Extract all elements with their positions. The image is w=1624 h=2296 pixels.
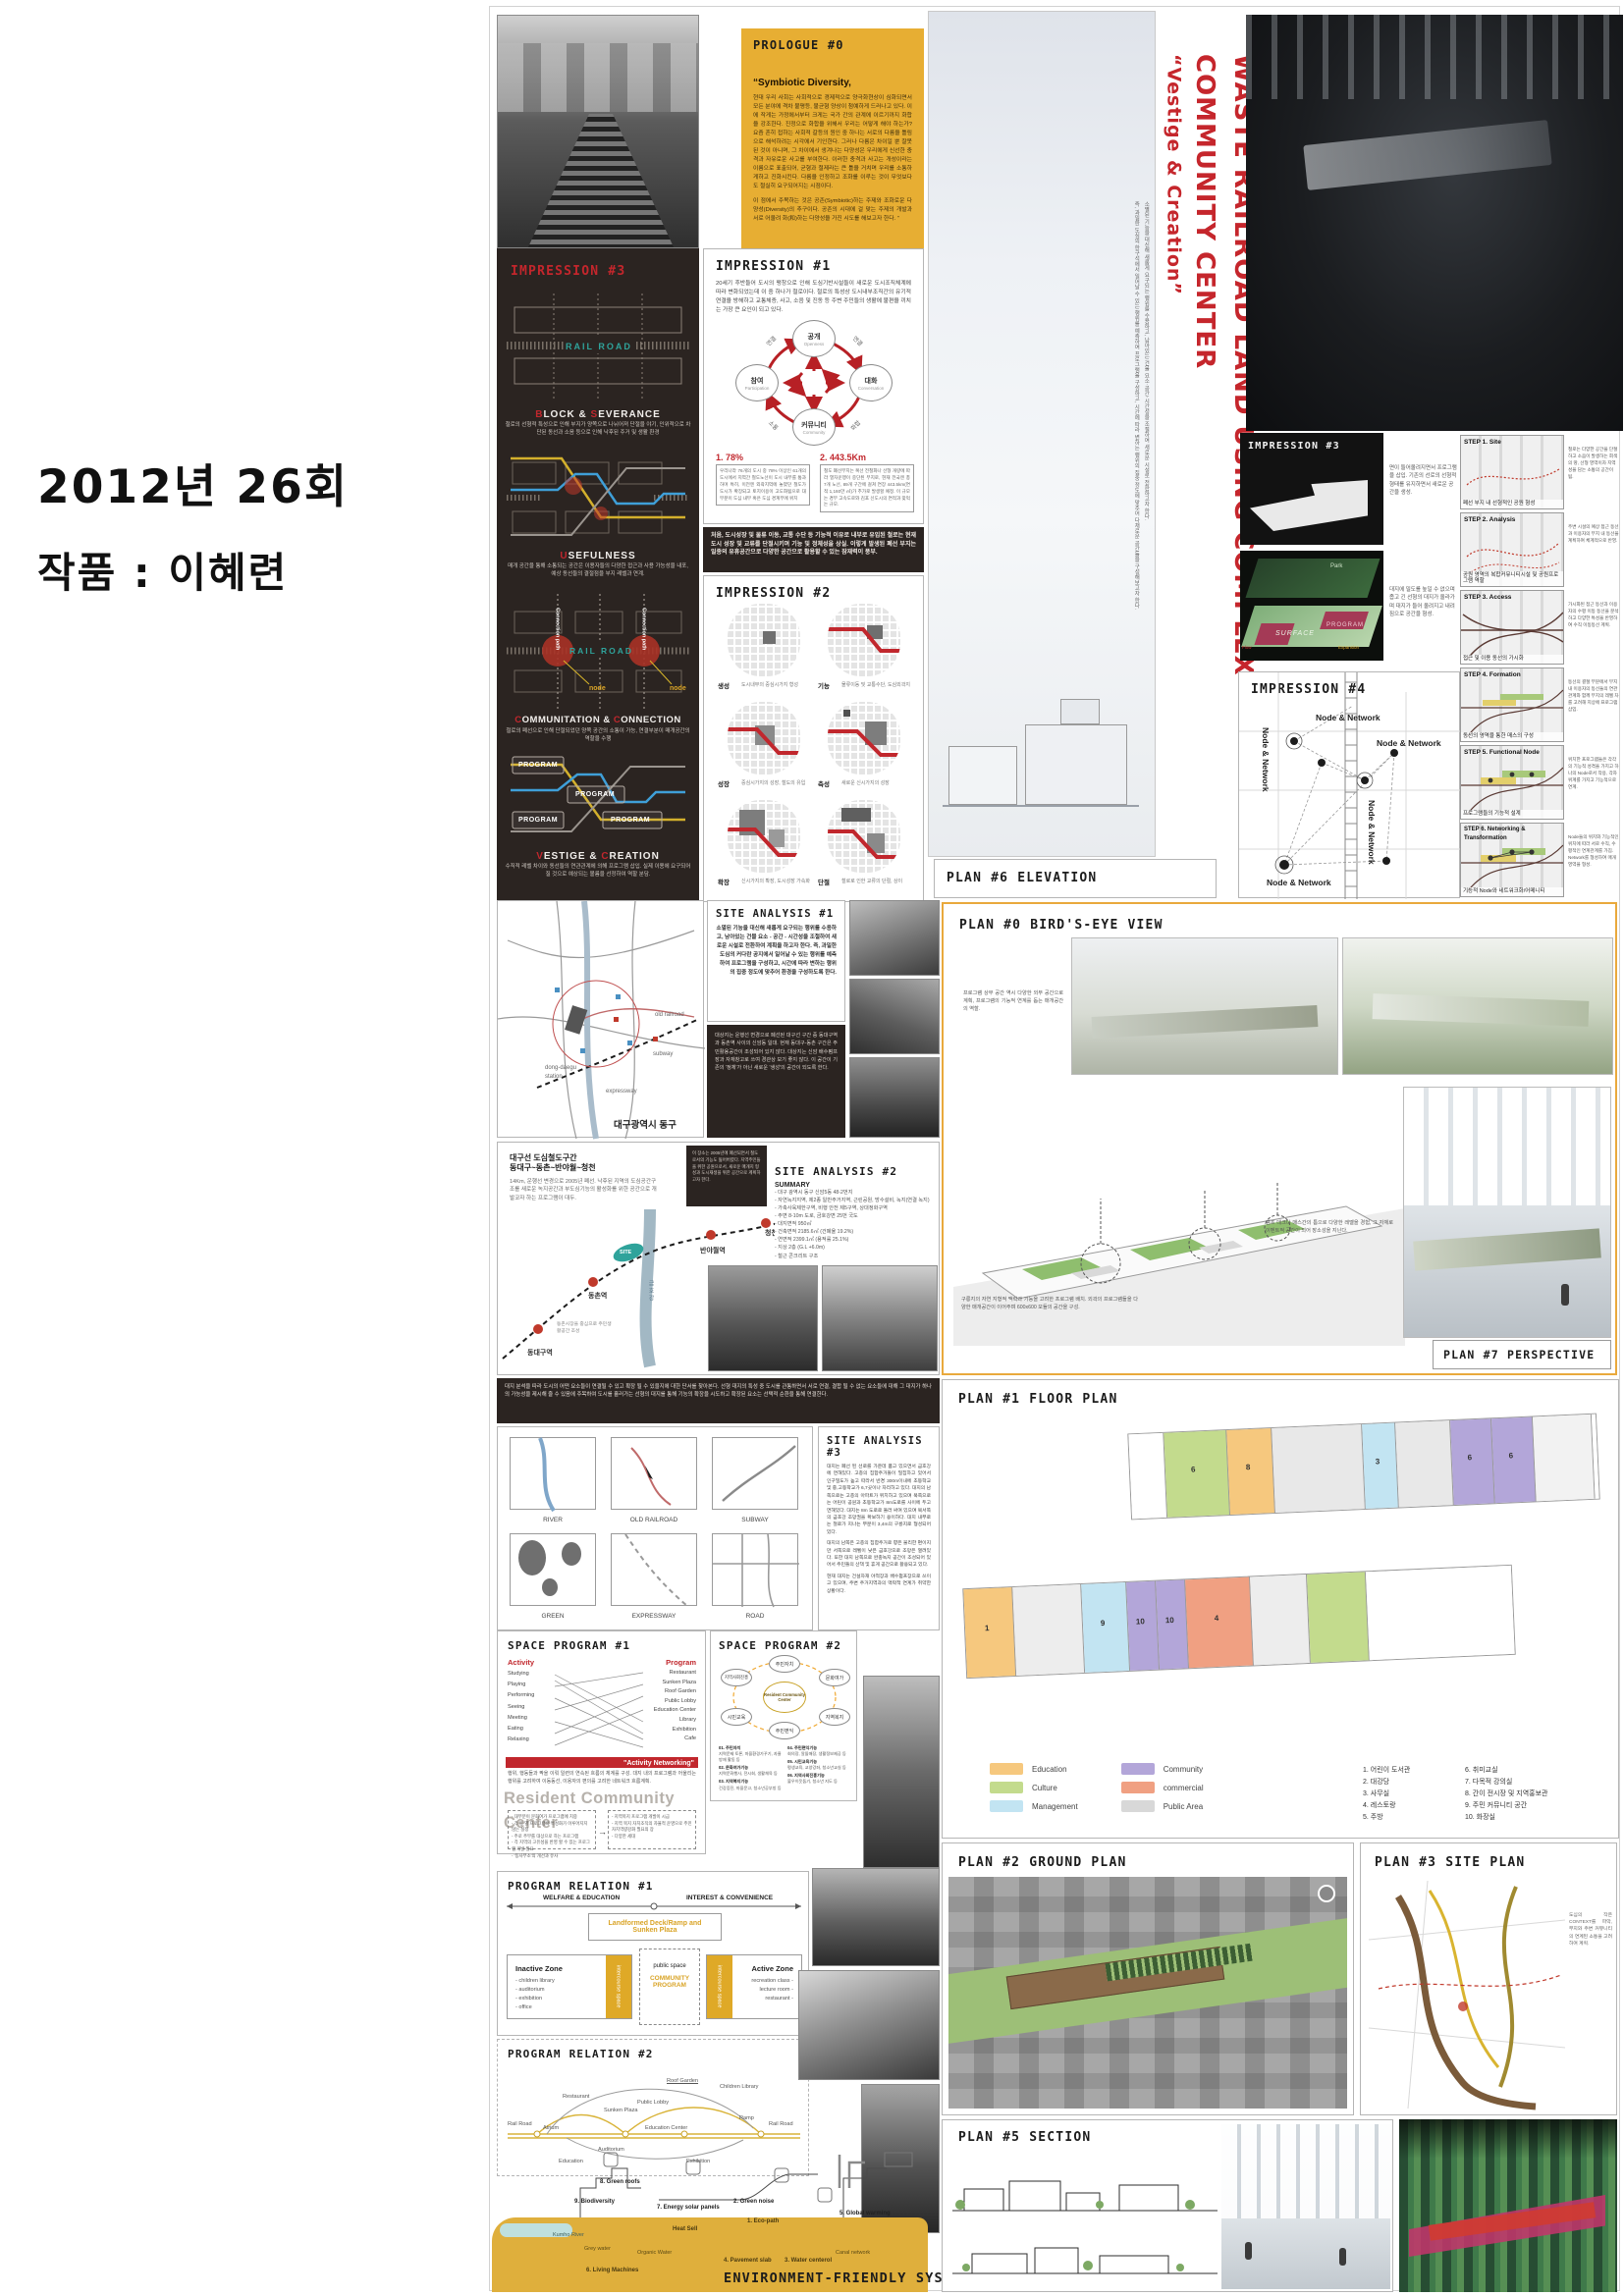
plan0-caption-2: 램프 데크나 매스간의 틈으로 다양한 레벨을 경험, 그 자체로 이벤트적 공… — [1266, 1220, 1393, 1236]
impression-note-bar: 처음, 도시성장 및 물류 이동, 교통 수단 등 기능적 이유로 내부로 유입… — [703, 527, 924, 572]
sp1-network-lines — [555, 1671, 643, 1749]
pr-photo-1 — [812, 1868, 940, 1966]
legend-label-community: Community — [1164, 1765, 1203, 1774]
sp1-panel: SPACE PROGRAM #1 Activity Program Studyi… — [497, 1630, 706, 1854]
paper-model-photo: IMPRESSION #3 — [1240, 433, 1383, 545]
render-deck-shape — [1303, 120, 1551, 190]
node-network-label-5: Node & Network — [1267, 877, 1331, 889]
plan0-caption-1: 프로그램 상부 공간 역시 다양한 외부 공간으로 계획, 프로그램의 기능적 … — [963, 990, 1063, 1013]
growth-cell-1: 생성 도시내부의 중심시가지 형성 — [718, 604, 812, 698]
pr1-middle-box: public space COMMUNITY PROGRAM — [639, 1949, 700, 2025]
station-3: 반야월역 — [700, 1247, 726, 1257]
sa2-summary-list: - 대구 광역시 동구 신암5동 48-2번지- 자연녹지지역, 제2종 일반주… — [775, 1189, 937, 1260]
legend-label-culture: Culture — [1032, 1784, 1057, 1792]
plan0-caption-3: 구릉지의 자연 지형적 맥락과 기능을 고려한 프로그램 배치. 외곽의 프로그… — [961, 1297, 1138, 1312]
impression4-panel: IMPRESSION #4 — [1238, 671, 1460, 898]
plan0-render-2 — [1342, 937, 1613, 1075]
pr1-inactive-box: Inactive Zone - children library- audito… — [507, 1954, 632, 2019]
elevation-strip — [928, 11, 1156, 857]
photo-green-interior-render — [1399, 2119, 1617, 2292]
sa3-p1: 대지는 폐선 된 선로를 가운데 품고 있으면서 금호강에 면해있다. 고층의 … — [827, 1464, 931, 1536]
node-network-diagram — [1239, 672, 1461, 899]
sp1-program-header: Program — [645, 1657, 696, 1668]
sp1-arrow: → — [598, 1826, 607, 1840]
step-row-4: STEP 4. Formation 동선의 영역을 통한 매스의 구성 동선의 … — [1460, 667, 1621, 744]
competition-poster-page: { "meta":{"year":"2012년 26회","work":"작품 … — [0, 0, 1624, 2296]
program-label-4: PROGRAM — [518, 816, 558, 827]
impression3-left-panel: IMPRESSION #3 RAIL ROAD BLOCK & SEVERANC… — [497, 248, 699, 902]
sp1-activity-header: Activity — [508, 1657, 534, 1668]
legend-label-management: Management — [1032, 1802, 1078, 1811]
env-canal: Canal network — [836, 2249, 870, 2257]
legend-swatch-management — [990, 1800, 1023, 1812]
prologue-paragraph-1: 현대 우리 사회는 사회적으로 경제적으로 양극화현상이 심화되면서 모든 분야… — [753, 94, 912, 191]
plan5-render — [1221, 2124, 1390, 2289]
env-l9: 9. Biodiversity — [574, 2198, 615, 2207]
prologue-title: PROLOGUE #0 — [753, 38, 912, 52]
severance-diagram: RAIL ROAD — [507, 294, 689, 400]
stat1-label: 1. 78% — [716, 452, 743, 465]
floorplan-legend: Education Culture Management Community c… — [990, 1763, 1204, 1819]
sa1-text: 소멸된 기능을 대신해 새롭게 요구되는 행위를 수용하고, 남아있는 건물 요… — [716, 925, 837, 978]
plan0-render-1 — [1071, 937, 1338, 1075]
station-2: 동촌역 — [588, 1292, 607, 1303]
plan3-caption: 도심의 작은 CONTEXT를 파악, 부지와 주변 커뮤니티의 연계된 소통을… — [1569, 1912, 1612, 1948]
pr1-panel: PROGRAM RELATION #1 WELFARE & EDUCATION … — [497, 1871, 809, 2036]
impression3-right-title: IMPRESSION #3 — [1248, 441, 1340, 452]
sa3-title: SITE ANALYSIS #3 — [827, 1435, 931, 1459]
render-towers-shape — [1246, 15, 1623, 99]
sa3-p3: 현재 대지는 건설자재 야적장과 배수펌프장으로 쓰이고 있으며, 주변 주거지… — [827, 1574, 931, 1595]
node-label-1: node — [589, 684, 606, 695]
impression1-intro: 20세기 후반들어 도시의 팽창으로 인해 도심기반시설들이 새로운 도시조직체… — [716, 280, 911, 315]
impression2-title: IMPRESSION #2 — [716, 586, 911, 601]
plan3-curves — [1369, 1881, 1565, 2109]
legend-swatch-education — [990, 1763, 1023, 1775]
pr1-inactive-list: - children library- auditorium - exhibit… — [515, 1977, 555, 2012]
plan2-panel: PLAN #2 GROUND PLAN — [942, 1842, 1354, 2115]
env-l1: 1. Eco-path — [747, 2217, 779, 2226]
sa1-station-label: dong-daegu station — [545, 1064, 594, 1082]
sa2-photo-1 — [708, 1265, 818, 1371]
usefulness-heading: USEFULNESS — [497, 549, 699, 563]
sa2-photo-2 — [822, 1265, 938, 1371]
plan5-title: PLAN #5 SECTION — [958, 2130, 1091, 2145]
node-network-label-1: Node & Network — [1316, 712, 1380, 724]
sp2-diagram: Resident Community Center 주민자치 문화여가 지역복지… — [721, 1655, 848, 1739]
sa2-dark-box: 이 장소는 2005년에 폐선되면서 철도로서의 기능도 잃어버렸다. 지역주민… — [686, 1146, 767, 1206]
paper-model-caption: 면이 들어올려지면서 프로그램을 삽입. 기존의 선로의 선형적 형태를 유지하… — [1389, 464, 1458, 497]
sa1-title: SITE ANALYSIS #1 — [716, 908, 837, 920]
sa3-p2: 대지의 남쪽은 고층의 집합주거로 향은 불리한 편이지만 서쪽으로 레벨이 낮… — [827, 1540, 931, 1570]
legend-swatch-culture — [990, 1782, 1023, 1793]
sa1-expressway-label: expressway — [606, 1088, 637, 1096]
node-network-label-3: Node & Network — [1259, 727, 1272, 792]
usefulness-diagram — [507, 453, 689, 543]
photo-old-tracks — [497, 15, 699, 248]
sa1-old-railroad-label: old railroad — [655, 1011, 684, 1020]
env-river-label: Kumho River — [553, 2231, 584, 2239]
expansion-label: Expansion — [1338, 645, 1359, 652]
legend-swatch-commercial — [1121, 1782, 1155, 1793]
impression3-left-title: IMPRESSION #3 — [511, 264, 625, 279]
sa2-title: SITE ANALYSIS #2 — [775, 1165, 937, 1178]
site-marker-label: SITE — [620, 1249, 631, 1256]
sp1-banner: "Activity Networking" — [506, 1757, 698, 1768]
thumb-river-label: RIVER — [510, 1516, 596, 1525]
severance-heading: BLOCK & SEVERANCE — [497, 407, 699, 422]
env-grey: Grey water — [584, 2245, 611, 2253]
pr-photo-2 — [798, 1970, 940, 2080]
photo-night-aerial-render — [1246, 15, 1623, 431]
title-side-note-2: 즉, 과밀한 도심의 한구석에서 일어날 수 있는 행위를 예측하여 프로그램을… — [1132, 201, 1140, 614]
program-label: PROGRAM — [1326, 621, 1364, 630]
plan3-panel: PLAN #3 SITE PLAN 도심의 작은 CONTEXT를 파악, 부지… — [1360, 1842, 1617, 2115]
prologue-panel: PROLOGUE #0 “Symbiotic Diversity, 현대 우리 … — [741, 28, 924, 250]
sa2-dark-text: 이 장소는 2005년에 폐선되면서 철도로서의 기능도 잃어버렸다. 지역주민… — [692, 1150, 761, 1184]
surface-diagram-caption: 대지에 밀도를 높일 수 없으며 좁고 긴 선형의 대지가 올라가며 대지가 들… — [1389, 586, 1458, 618]
node-participation: 참여 Participation — [735, 364, 779, 401]
thumb-oldrail-label: OLD RAILROAD — [611, 1516, 697, 1525]
park-plane-shape — [1246, 559, 1380, 598]
poster-board: PROLOGUE #0 “Symbiotic Diversity, 현대 우리 … — [489, 6, 1620, 2291]
node-conversation: 대화 Conversation — [849, 364, 893, 401]
flow-label: Flow — [1242, 645, 1252, 652]
sp2-list-col1: 01. 주민자치지역문제 토론, 마을환경가꾸기, 자율방재 활동 등 02. … — [719, 1745, 784, 1791]
prologue-paragraph-2: 이 점에서 주목하는 것은 공존(Symbiotic)하는 주제와 조화로운 다… — [753, 197, 912, 224]
sp2-panel: SPACE PROGRAM #2 Resident Community Cent… — [710, 1630, 857, 1801]
usefulness-caption: 매개 공간을 통해 소통되는 공간은 이용자들의 다양한 접근과 사용 가능성을… — [505, 562, 691, 579]
pr1-axis-right: INTEREST & CONVENIENCE — [686, 1894, 773, 1903]
node-community: 커뮤니티 Community — [792, 408, 836, 446]
legend-label-education: Education — [1032, 1765, 1067, 1774]
impression2-panel: IMPRESSION #2 생성 도시내부의 중심시가지 형성 기능 물류이동 … — [703, 575, 924, 902]
connection-diagram: RAIL ROAD Connection path Connection pat… — [507, 594, 689, 710]
sa1-photo-2 — [849, 979, 940, 1054]
sa1-map-caption: 대구광역시 동구 — [614, 1119, 677, 1133]
severance-caption: 철로의 선형적 특성으로 인해 부지가 양쪽으로 나뉘어져 단절을 야기, 인위… — [505, 421, 691, 438]
room-list-col2: 6. 취미교실7. 다목적 강의실 8. 간이 전시장 및 지역홍보관9. 주민… — [1465, 1765, 1547, 1823]
plan0-panel: PLAN #0 BIRD'S-EYE VIEW 프로그램 상부 공간 역시 다양… — [942, 902, 1617, 1375]
sp1-activities: StudyingPlaying PerformingSeeing Meeting… — [508, 1669, 534, 1745]
env-l8: 8. Green roofs — [600, 2178, 640, 2187]
sa1-subway-label: subway — [653, 1050, 673, 1059]
node-label-2: node — [670, 684, 686, 695]
thumb-subway-label: SUBWAY — [712, 1516, 798, 1525]
sp1-box1: - 대부분이 문화여가 프로그램에 치중- 각 동 별 프로그램의 특성화가 이… — [508, 1810, 596, 1849]
pr1-intercourse-left: intercourse space — [606, 1955, 631, 2018]
left-title-work: 작품 : 이혜련 — [37, 542, 288, 604]
photo-trackbed-shape — [527, 114, 675, 248]
env-heat: Heat Sell — [673, 2225, 697, 2234]
pr2-title: PROGRAM RELATION #2 — [508, 2048, 798, 2060]
sa1-map-panel: old railroad dong-daegu station subway e… — [497, 900, 704, 1138]
plan2-render — [948, 1877, 1347, 2109]
sa2-heading2: 동대구~동촌~반야월~청천 — [510, 1162, 596, 1174]
room-list-col1: 1. 어린이 도서관2. 대강당 3. 사무실4. 레스토랑 5. 주방 — [1363, 1765, 1410, 1823]
sa3-bar: 대지 분석을 따라 도시의 어떤 요소들이 연결될 수 있고 확장 될 수 있을… — [497, 1378, 940, 1423]
sa1-photo-1 — [849, 900, 940, 976]
sp1-caption: 행위, 행동들과 짝을 이뤄 일련의 연속된 흐름의 체계를 구성. 대지 내의… — [508, 1771, 696, 1786]
program-label-1: PROGRAM — [518, 761, 558, 772]
env-l5: 5. Global warming — [839, 2210, 891, 2218]
connection-caption: 철로의 폐선으로 인해 단절되었던 양쪽 공간의 소통이 가능, 연결부분이 매… — [505, 727, 691, 744]
node-network-label-2: Node & Network — [1377, 737, 1441, 750]
step-row-2: STEP 2. Analysis 공원 영역의 복합커뮤니티시설 및 공원프로그… — [1460, 512, 1621, 589]
sp2-center: Resident Community Center — [763, 1682, 806, 1713]
node-openness: 공개 Openness — [792, 320, 836, 357]
photo-houses-shape — [498, 43, 698, 112]
env-l2: 2. Green noise — [733, 2198, 774, 2207]
plan7-label-box: PLAN #7 PERSPECTIVE — [1433, 1340, 1611, 1369]
floorplan-upper: 6 8 3 6 6 — [1127, 1414, 1599, 1521]
program-diagram: PROGRAM PROGRAM PROGRAM PROGRAM — [507, 755, 689, 839]
step-row-5: STEP 5. Functional Node 프로그램들의 기능적 설계 위치… — [1460, 745, 1621, 822]
connection-path-label-2: Connection path — [639, 608, 647, 650]
env-organic: Organic Water — [637, 2249, 672, 2257]
env-l3: 3. Water centerol — [785, 2257, 832, 2266]
plan0-title: PLAN #0 BIRD'S-EYE VIEW — [959, 918, 1164, 933]
thumb-expressway-label: EXPRESSWAY — [611, 1612, 697, 1622]
sa3-thumbs-panel: RIVER OLD RAILROAD SUBWAY GREEN EXPRESSW… — [497, 1426, 813, 1630]
plan7-label: PLAN #7 PERSPECTIVE — [1443, 1348, 1595, 1362]
growth-cell-2: 기능 물류이동 및 교통수단, 도심외곽지 — [818, 604, 912, 698]
plan5-panel: PLAN #5 SECTION — [942, 2119, 1393, 2292]
thumb-green-label: GREEN — [510, 1612, 596, 1622]
sa1-text-box: SITE ANALYSIS #1 소멸된 기능을 대신해 새롭게 요구되는 행위… — [707, 900, 845, 1022]
sp-photo-rails — [863, 1676, 940, 1868]
openness-diagram: 공개 Openness 대화 Conversation 커뮤니티 Communi… — [735, 320, 893, 446]
plan1-panel: PLAN #1 FLOOR PLAN 6 8 3 6 6 1 9 10 10 4 — [942, 1379, 1619, 1839]
plan3-title: PLAN #3 SITE PLAN — [1375, 1855, 1525, 1870]
connection-heading: COMMUNITATION & CONNECTION — [497, 714, 699, 727]
rail-road-label: RAIL ROAD — [566, 341, 632, 354]
growth-cell-6: 단절 철로로 인한 교류의 단절, 상이 — [818, 800, 912, 894]
stat1-text: 우리나라 76개의 도시 중 78% 이상인 61개의 도시에서 지역간 철도노… — [716, 464, 810, 506]
sa3-text-box: SITE ANALYSIS #3 대지는 폐선 된 선로를 가운데 품고 있으면… — [818, 1426, 940, 1630]
plan7-perspective-render — [1403, 1087, 1611, 1338]
legend-swatch-public — [1121, 1800, 1155, 1812]
elevation-building-lines — [943, 689, 1139, 807]
sa2-summary-title: SUMMARY — [775, 1182, 937, 1189]
sp1-box2: - 지역복지 프로그램 개발이 시급- 지역 복지 자치조직의 자율적 운영으로… — [608, 1810, 696, 1849]
station-1: 동대구역 — [527, 1349, 553, 1360]
impression1-panel: IMPRESSION #1 20세기 후반들어 도시의 팽창으로 인해 도심기반… — [703, 248, 924, 524]
park-label: Park — [1330, 562, 1342, 571]
sp1-programs: RestaurantSunken Plaza Roof GardenPublic… — [635, 1669, 696, 1744]
sa2-note: 동촌시장을 중심으로 주민생활공간 조성 — [557, 1321, 616, 1335]
section-drawing — [952, 2156, 1218, 2283]
env-l4: 4. Pavement slab — [724, 2257, 772, 2266]
plan2-title: PLAN #2 GROUND PLAN — [958, 1855, 1127, 1870]
growth-cell-3: 성장 중심시가지의 성장, 철도의 유입 — [718, 702, 812, 796]
sa1-dark-box: 대상지는 운행선 변경으로 폐선된 대구선 구간 중 동대구역과 동촌역 사이의… — [707, 1025, 845, 1138]
pr1-axis-left: WELFARE & EDUCATION — [543, 1894, 620, 1903]
plan6-label: PLAN #6 ELEVATION — [947, 871, 1097, 885]
growth-cell-5: 확장 신시가지의 확장, 도시성장 가속화 — [718, 800, 812, 894]
env-l7: 7. Energy solar panels — [657, 2204, 720, 2213]
left-title-year: 2012년 26회 — [37, 454, 349, 523]
connection-path-label-1: Connection path — [553, 608, 561, 650]
prologue-quote: “Symbiotic Diversity, — [753, 78, 912, 88]
sp1-title: SPACE PROGRAM #1 — [508, 1639, 695, 1652]
steps-column: STEP 1. Site 폐선 부지 내 선형적인 공원 형성 철로는 다양한 … — [1460, 435, 1621, 900]
title-side-note-1: 소멸된 기능을 대신해 새롭게 요구되는 행위를 수용하고, 남아있는 건물 요… — [1142, 201, 1150, 614]
plan1-title: PLAN #1 FLOOR PLAN — [958, 1392, 1117, 1407]
sa3-bar-text: 대지 분석을 따라 도시의 어떤 요소들이 연결될 수 있고 확장 될 수 있을… — [505, 1383, 932, 1399]
main-subtitle: “Vestige & Creation” — [1160, 54, 1188, 295]
node-network-label-4: Node & Network — [1365, 800, 1378, 865]
surface-label: SURFACE — [1275, 629, 1315, 640]
legend-label-public: Public Area — [1164, 1802, 1203, 1811]
impression-note-text: 처음, 도시성장 및 물류 이동, 교통 수단 등 기능적 이유로 내부로 유입… — [711, 532, 916, 558]
program-label-2: PROGRAM — [575, 790, 615, 801]
surface-diagram-image: Park SURFACE PROGRAM Expansion Flow — [1240, 551, 1383, 661]
step-row-1: STEP 1. Site 폐선 부지 내 선형적인 공원 형성 철로는 다양한 … — [1460, 435, 1621, 511]
sa2-summary: SITE ANALYSIS #2 SUMMARY - 대구 광역시 동구 신암5… — [775, 1165, 937, 1278]
step-row-3: STEP 3. Access 접근 및 이용 동선의 가시화 가시화된 접근 동… — [1460, 590, 1621, 667]
sa1-photo-3 — [849, 1057, 940, 1138]
rail-road-label-2: RAIL ROAD — [569, 645, 633, 658]
pr1-active-box: intercourse space Active Zone recreation… — [706, 1954, 802, 2019]
env-l6: 6. Living Machines — [586, 2267, 638, 2275]
legend-label-commercial: commercial — [1164, 1784, 1204, 1792]
stat2-text: 철도 폐선부지는 복선 전철화나 선형 개량에 따라 열차운행이 중단된 부지로… — [820, 464, 914, 512]
pr1-active-list: recreation class -lecture room - restaur… — [751, 1977, 793, 2003]
legend-swatch-community — [1121, 1763, 1155, 1775]
sp2-title: SPACE PROGRAM #2 — [719, 1639, 848, 1652]
daegu-map — [498, 901, 705, 1139]
sa1-dark-text: 대상지는 운행선 변경으로 폐선된 대구선 구간 중 동대구역과 동촌역 사이의… — [715, 1032, 838, 1073]
plan6-label-box: PLAN #6 ELEVATION — [934, 859, 1217, 898]
step-row-6: STEP 6. Networking & Transformation 기능적 … — [1460, 823, 1621, 899]
impression1-title: IMPRESSION #1 — [716, 259, 911, 274]
river-label: 금 호 강 — [645, 1280, 654, 1301]
vestige-heading: VESTIGE & CREATION — [497, 849, 699, 864]
program-label-3: PROGRAM — [611, 816, 650, 827]
floorplan-lower: 1 9 10 10 4 — [962, 1565, 1515, 1679]
pr1-title: PROGRAM RELATION #1 — [508, 1880, 798, 1893]
stat2-label: 2. 443.5Km — [820, 452, 866, 465]
thumb-road-label: ROAD — [712, 1612, 798, 1622]
pr1-intercourse-right: intercourse space — [707, 1955, 732, 2018]
sp2-list-col2: 04. 주민편익기능회의장, 알뜰매장, 생활정보제공 등 05. 시민교육기능… — [787, 1745, 852, 1786]
folded-paper-shape — [1250, 480, 1368, 531]
growth-cell-4: 축성 새로운 신시가지의 성장 — [818, 702, 912, 796]
pr1-top-box: Landformed Deck/Ramp and Sunken Plaza — [588, 1913, 722, 1941]
vestige-caption: 수직적 레벨 차이와 동선들의 연관관계에 의해 프로그램 삽입. 실제 이용에… — [505, 863, 691, 880]
